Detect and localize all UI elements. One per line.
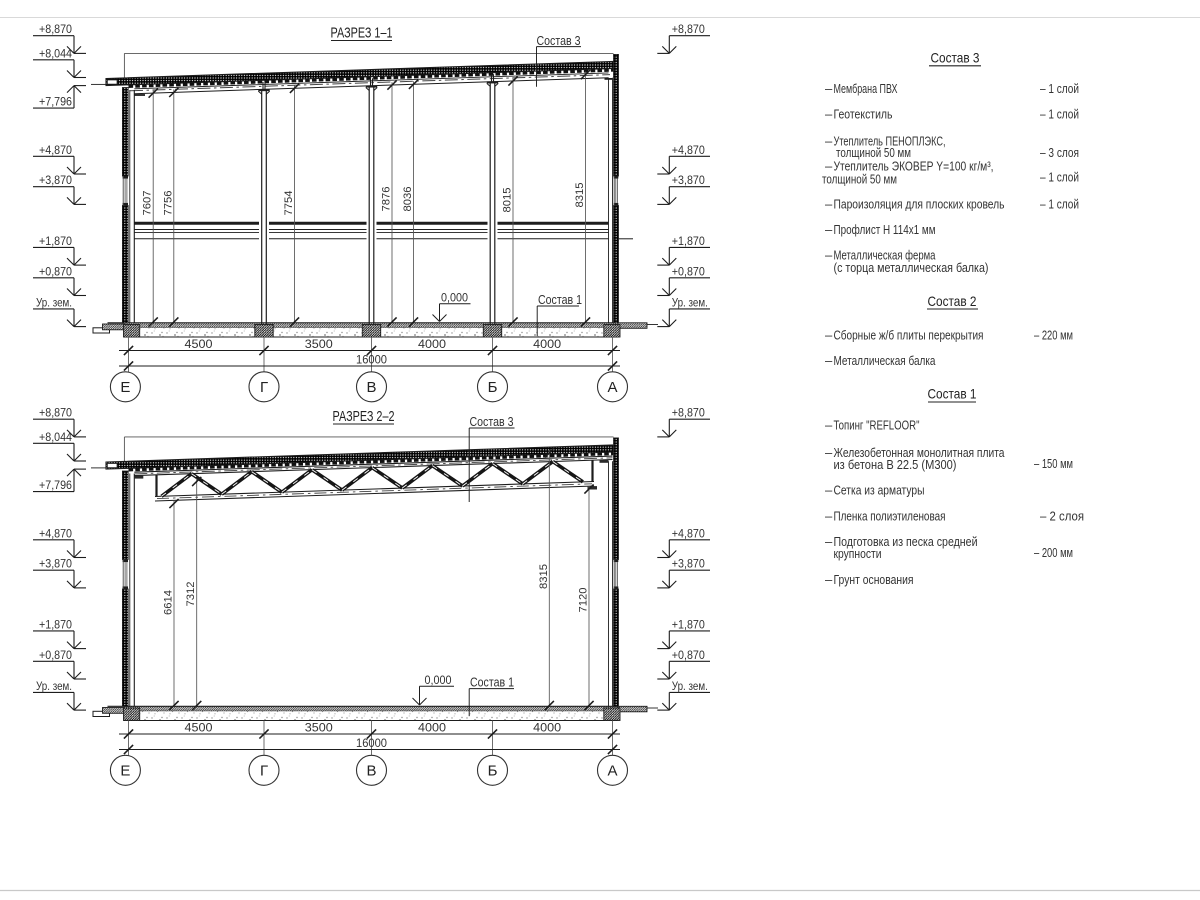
svg-text:Пароизоляция для плоских крове: Пароизоляция для плоских кровель	[834, 197, 1005, 212]
svg-text:7120: 7120	[578, 588, 590, 613]
svg-text:+8,870: +8,870	[39, 24, 72, 36]
svg-text:8315: 8315	[538, 564, 550, 589]
svg-text:+8,044: +8,044	[39, 48, 73, 60]
svg-text:Е: Е	[120, 763, 130, 780]
svg-text:7607: 7607	[142, 191, 154, 216]
svg-text:+3,870: +3,870	[672, 559, 705, 571]
svg-text:–: –	[825, 353, 833, 368]
svg-text:16000: 16000	[356, 355, 387, 367]
svg-text:8036: 8036	[402, 187, 414, 212]
svg-text:–: –	[825, 509, 833, 524]
svg-text:+1,870: +1,870	[672, 619, 705, 631]
svg-text:–: –	[825, 572, 833, 587]
svg-text:4000: 4000	[418, 723, 446, 735]
svg-text:– 220 мм: – 220 мм	[1034, 328, 1073, 343]
svg-text:– 1 слой: – 1 слой	[1040, 197, 1079, 212]
svg-text:3500: 3500	[305, 723, 333, 735]
svg-text:+0,870: +0,870	[39, 266, 72, 278]
svg-text:А: А	[607, 763, 617, 780]
svg-text:– 200 мм: – 200 мм	[1034, 545, 1073, 560]
svg-text:Е: Е	[120, 379, 130, 396]
svg-text:Сетка из арматуры: Сетка из арматуры	[834, 483, 925, 498]
svg-text:В: В	[366, 763, 376, 780]
svg-text:Б: Б	[488, 379, 498, 396]
svg-text:7754: 7754	[283, 191, 295, 216]
svg-text:Б: Б	[488, 763, 498, 780]
svg-text:0,000: 0,000	[441, 293, 468, 305]
svg-text:+0,870: +0,870	[672, 266, 705, 278]
svg-text:Металлическая балка: Металлическая балка	[834, 353, 937, 368]
svg-text:РАЗРЕЗ 2–2: РАЗРЕЗ 2–2	[333, 409, 395, 425]
svg-text:Состав 3: Состав 3	[931, 50, 980, 66]
svg-text:Пленка полиэтиленовая: Пленка полиэтиленовая	[834, 509, 946, 524]
svg-text:Состав 3: Состав 3	[537, 34, 581, 48]
svg-text:16000: 16000	[356, 738, 387, 750]
svg-text:8015: 8015	[502, 188, 514, 213]
svg-text:толщиной 50 мм: толщиной 50 мм	[822, 172, 897, 187]
svg-text:Состав 3: Состав 3	[470, 415, 514, 429]
svg-text:– 1 слой: – 1 слой	[1040, 170, 1079, 185]
svg-text:Ур. зем.: Ур. зем.	[36, 297, 72, 309]
svg-text:Профлист Н 114х1 мм: Профлист Н 114х1 мм	[834, 222, 936, 237]
svg-text:+3,870: +3,870	[39, 559, 72, 571]
svg-text:Грунт основания: Грунт основания	[834, 572, 914, 587]
svg-text:РАЗРЕЗ 1–1: РАЗРЕЗ 1–1	[331, 26, 393, 42]
svg-text:Г: Г	[260, 763, 268, 780]
svg-text:–: –	[825, 445, 833, 460]
svg-text:Ур. зем.: Ур. зем.	[672, 681, 708, 693]
svg-text:Состав 1: Состав 1	[470, 676, 514, 690]
svg-text:из бетона В 22.5 (М300): из бетона В 22.5 (М300)	[834, 457, 957, 472]
svg-text:А: А	[607, 379, 617, 396]
svg-text:–: –	[825, 81, 833, 96]
svg-text:Ур. зем.: Ур. зем.	[672, 297, 708, 309]
svg-text:7312: 7312	[185, 582, 197, 607]
svg-text:–: –	[825, 197, 833, 212]
svg-text:+1,870: +1,870	[672, 236, 705, 248]
svg-text:– 2 слоя: – 2 слоя	[1040, 509, 1084, 524]
svg-text:+7,796: +7,796	[39, 97, 72, 109]
svg-text:4000: 4000	[533, 723, 561, 735]
svg-text:Ур. зем.: Ур. зем.	[36, 681, 72, 693]
svg-text:(с торца металлическая балка): (с торца металлическая балка)	[834, 260, 989, 275]
svg-text:Мембрана ПВХ: Мембрана ПВХ	[834, 81, 898, 96]
svg-text:– 1 слой: – 1 слой	[1040, 81, 1079, 96]
svg-text:0,000: 0,000	[425, 675, 452, 687]
svg-text:Г: Г	[260, 379, 268, 396]
svg-text:8315: 8315	[574, 183, 586, 208]
svg-text:Состав 1: Состав 1	[538, 293, 582, 307]
svg-text:+8,044: +8,044	[39, 432, 73, 444]
svg-text:Топинг "REFLOOR": Топинг "REFLOOR"	[834, 418, 920, 433]
svg-text:+8,870: +8,870	[672, 24, 705, 36]
svg-text:–: –	[825, 534, 833, 549]
svg-text:4000: 4000	[418, 339, 446, 351]
svg-text:Состав 1: Состав 1	[928, 386, 977, 402]
svg-text:+0,870: +0,870	[39, 650, 72, 662]
svg-text:В: В	[366, 379, 376, 396]
svg-text:– 150 мм: – 150 мм	[1034, 456, 1073, 471]
svg-text:+4,870: +4,870	[39, 145, 72, 157]
svg-text:+8,870: +8,870	[39, 408, 72, 420]
svg-text:3500: 3500	[305, 339, 333, 351]
svg-text:+0,870: +0,870	[672, 650, 705, 662]
svg-text:7756: 7756	[162, 191, 174, 216]
svg-text:–: –	[825, 483, 833, 498]
svg-text:+4,870: +4,870	[672, 145, 705, 157]
svg-text:+8,870: +8,870	[672, 408, 705, 420]
svg-text:7876: 7876	[381, 187, 393, 212]
svg-text:–: –	[825, 418, 833, 433]
svg-text:6614: 6614	[163, 590, 175, 615]
svg-text:+4,870: +4,870	[39, 528, 72, 540]
svg-text:крупности: крупности	[834, 546, 882, 561]
svg-text:+7,796: +7,796	[39, 480, 72, 492]
svg-text:–: –	[825, 222, 833, 237]
svg-text:– 3 слоя: – 3 слоя	[1040, 145, 1079, 160]
svg-text:Сборные ж/б плиты перекрытия: Сборные ж/б плиты перекрытия	[834, 328, 984, 343]
svg-text:–: –	[825, 328, 833, 343]
svg-text:– 1 слой: – 1 слой	[1040, 107, 1079, 122]
svg-text:4500: 4500	[185, 723, 213, 735]
svg-text:+3,870: +3,870	[39, 175, 72, 187]
svg-text:Состав 2: Состав 2	[928, 293, 977, 309]
svg-text:+1,870: +1,870	[39, 619, 72, 631]
svg-text:4000: 4000	[533, 339, 561, 351]
svg-text:–: –	[825, 134, 833, 149]
svg-text:+1,870: +1,870	[39, 236, 72, 248]
svg-text:Геотекстиль: Геотекстиль	[834, 107, 893, 122]
svg-text:–: –	[825, 107, 833, 122]
svg-text:+3,870: +3,870	[672, 175, 705, 187]
svg-text:+4,870: +4,870	[672, 528, 705, 540]
svg-text:4500: 4500	[185, 339, 213, 351]
svg-text:–: –	[825, 248, 833, 263]
